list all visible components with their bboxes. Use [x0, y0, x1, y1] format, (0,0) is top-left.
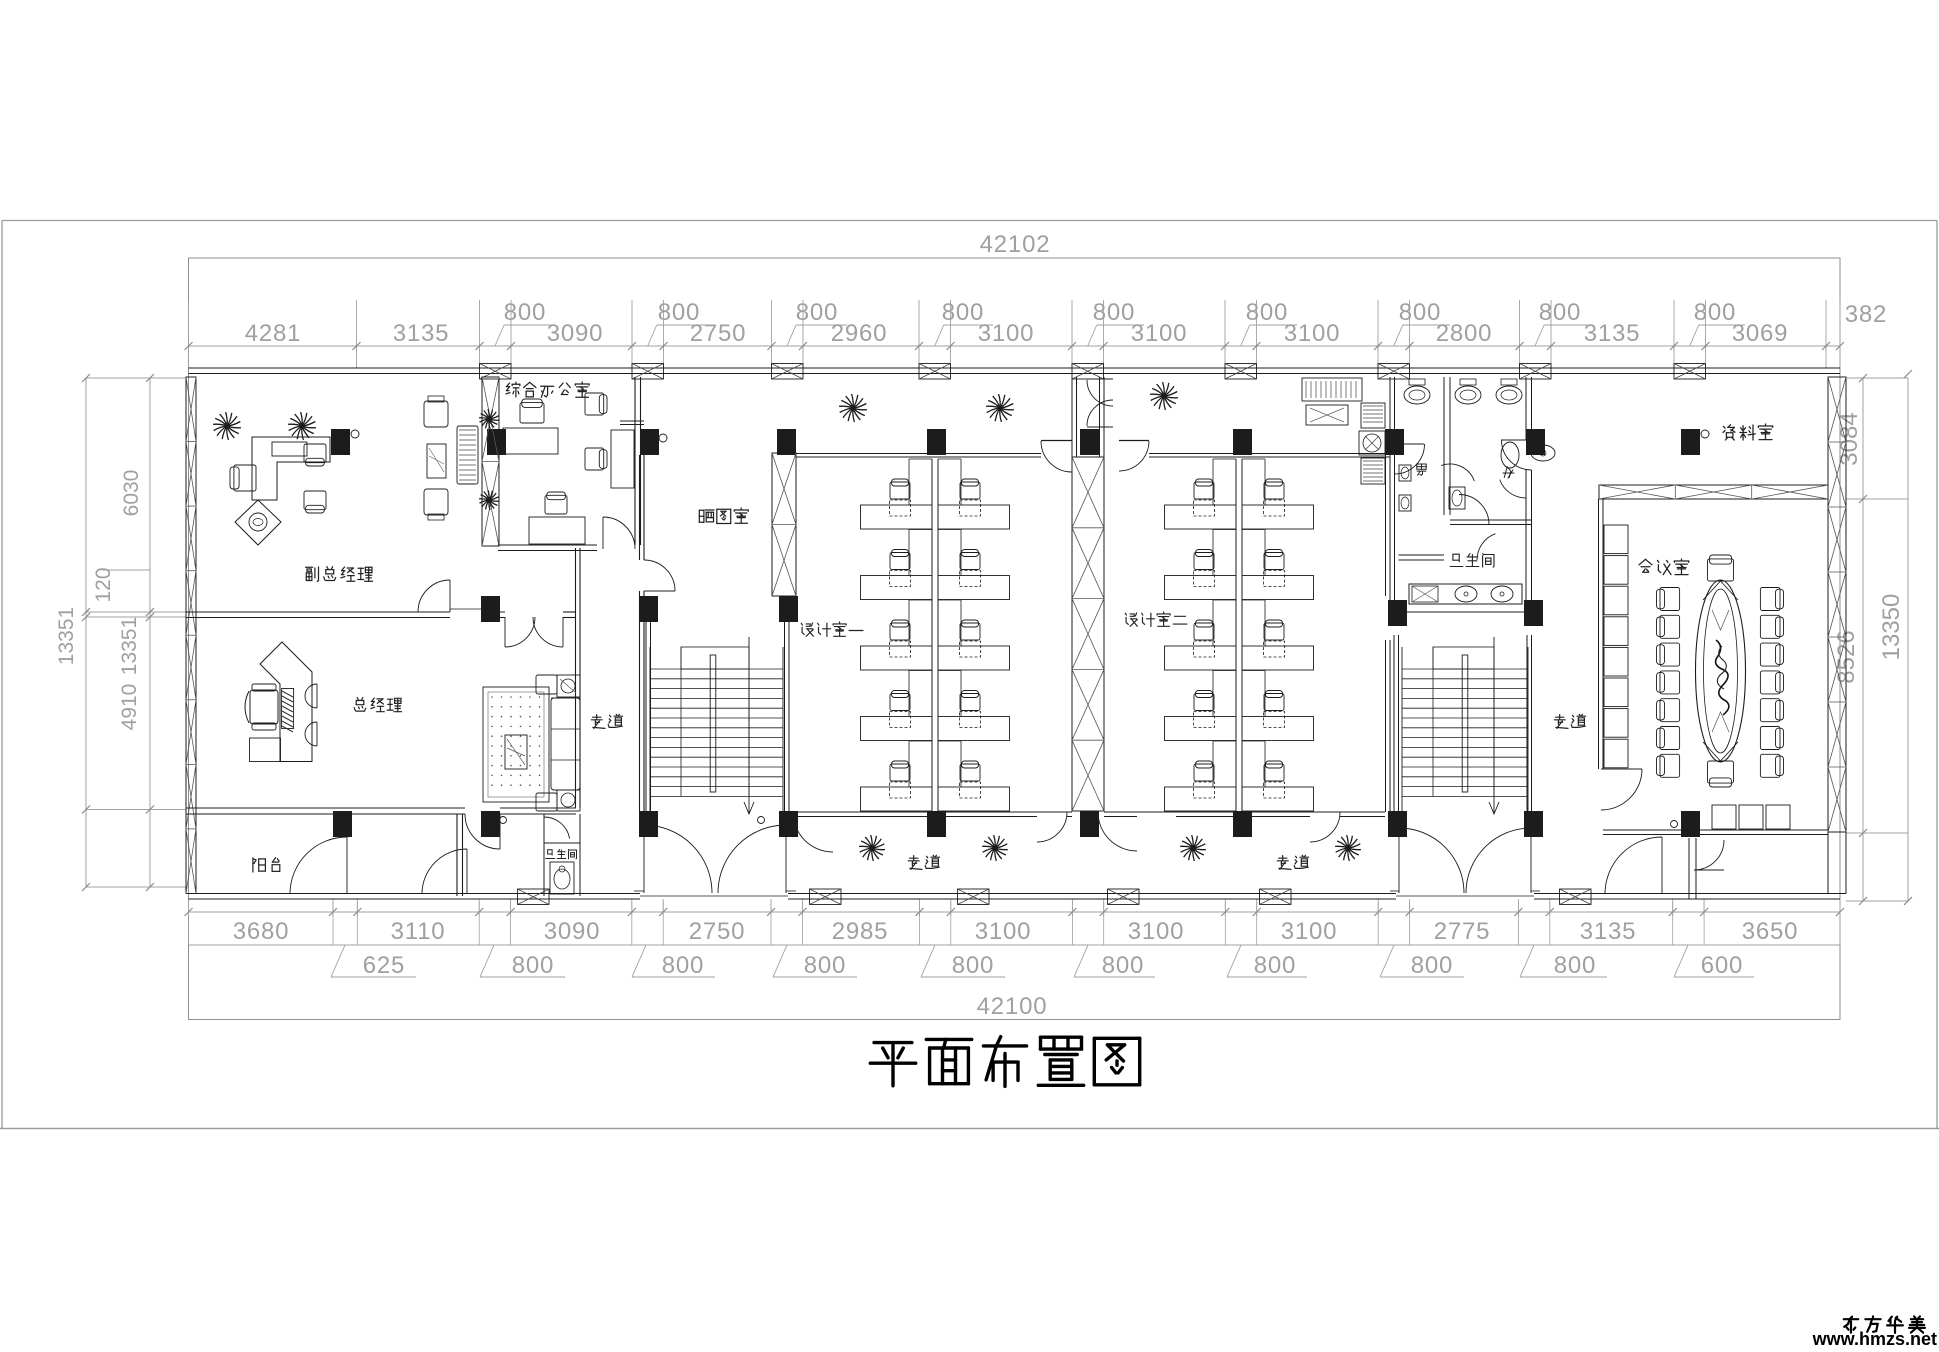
- svg-text:3135: 3135: [1584, 320, 1641, 347]
- svg-text:800: 800: [942, 299, 984, 326]
- svg-text:3100: 3100: [1128, 918, 1185, 945]
- svg-text:800: 800: [952, 952, 994, 979]
- svg-text:6030: 6030: [120, 470, 143, 517]
- svg-text:3100: 3100: [1131, 320, 1188, 347]
- svg-text:120: 120: [92, 567, 115, 602]
- svg-text:800: 800: [1554, 952, 1596, 979]
- svg-text:600: 600: [1701, 952, 1743, 979]
- svg-text:13351: 13351: [118, 617, 141, 675]
- svg-text:800: 800: [1694, 299, 1736, 326]
- svg-text:800: 800: [1539, 299, 1581, 326]
- svg-text:3135: 3135: [393, 320, 450, 347]
- svg-text:2960: 2960: [831, 320, 888, 347]
- svg-text:800: 800: [658, 299, 700, 326]
- svg-text:800: 800: [1399, 299, 1441, 326]
- svg-text:3110: 3110: [391, 918, 446, 945]
- svg-text:3135: 3135: [1580, 918, 1637, 945]
- svg-text:2775: 2775: [1434, 918, 1491, 945]
- svg-text:2800: 2800: [1436, 320, 1493, 347]
- svg-text:www.hmzs.net: www.hmzs.net: [1812, 1329, 1937, 1349]
- svg-text:800: 800: [662, 952, 704, 979]
- svg-text:3100: 3100: [975, 918, 1032, 945]
- svg-text:800: 800: [1254, 952, 1296, 979]
- svg-text:800: 800: [512, 952, 554, 979]
- svg-text:42100: 42100: [977, 993, 1048, 1020]
- svg-text:3069: 3069: [1732, 320, 1789, 347]
- svg-text:2750: 2750: [689, 918, 746, 945]
- svg-text:3100: 3100: [978, 320, 1035, 347]
- svg-text:42102: 42102: [980, 231, 1051, 258]
- svg-text:800: 800: [504, 299, 546, 326]
- svg-text:13351: 13351: [55, 607, 78, 665]
- svg-text:3100: 3100: [1281, 918, 1338, 945]
- svg-text:3090: 3090: [547, 320, 604, 347]
- svg-text:2985: 2985: [832, 918, 889, 945]
- svg-text:800: 800: [796, 299, 838, 326]
- svg-text:3680: 3680: [233, 918, 290, 945]
- svg-text:3650: 3650: [1742, 918, 1799, 945]
- svg-text:382: 382: [1845, 301, 1887, 328]
- svg-text:4910: 4910: [118, 684, 141, 731]
- svg-text:3090: 3090: [544, 918, 601, 945]
- svg-text:3100: 3100: [1284, 320, 1341, 347]
- svg-text:800: 800: [1102, 952, 1144, 979]
- svg-text:625: 625: [363, 952, 405, 979]
- svg-text:4281: 4281: [245, 320, 302, 347]
- svg-text:800: 800: [1093, 299, 1135, 326]
- svg-text:800: 800: [1246, 299, 1288, 326]
- svg-text:800: 800: [1411, 952, 1453, 979]
- svg-text:13350: 13350: [1878, 594, 1905, 661]
- svg-text:800: 800: [804, 952, 846, 979]
